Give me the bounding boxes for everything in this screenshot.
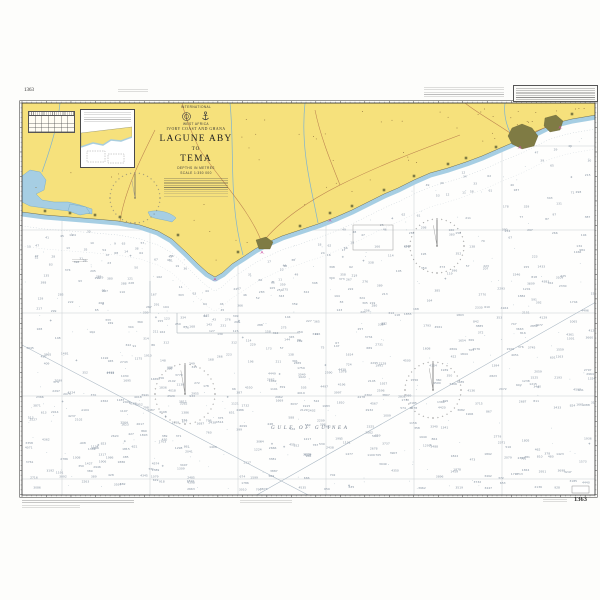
- svg-text:46: 46: [220, 302, 224, 306]
- town-symbol: [44, 210, 47, 213]
- town-symbol: [413, 175, 416, 178]
- svg-text:67: 67: [154, 257, 158, 261]
- svg-text:288: 288: [257, 323, 263, 327]
- svg-text:123: 123: [233, 329, 239, 333]
- svg-text:2438: 2438: [208, 420, 216, 424]
- svg-text:3049: 3049: [298, 372, 306, 376]
- svg-text:276: 276: [225, 317, 231, 321]
- svg-text:371: 371: [176, 434, 182, 438]
- svg-text:64: 64: [203, 302, 207, 306]
- svg-text:2185: 2185: [409, 401, 417, 405]
- svg-text:842: 842: [473, 320, 479, 324]
- svg-text:127: 127: [209, 329, 215, 333]
- svg-text:223: 223: [483, 264, 489, 268]
- svg-text:702: 702: [330, 473, 336, 477]
- svg-text:731: 731: [148, 467, 154, 471]
- svg-text:651: 651: [229, 410, 235, 414]
- title-fineprint-1: [164, 178, 228, 190]
- svg-text:588: 588: [288, 416, 294, 420]
- town-symbol: [351, 205, 354, 208]
- svg-text:83: 83: [49, 263, 53, 267]
- svg-text:217: 217: [36, 307, 42, 311]
- svg-text:162: 162: [160, 330, 166, 334]
- svg-text:30: 30: [588, 158, 592, 162]
- svg-text:1661: 1661: [576, 402, 584, 406]
- svg-text:67: 67: [237, 287, 241, 291]
- svg-text:4019: 4019: [297, 391, 305, 395]
- svg-text:4304: 4304: [429, 363, 437, 367]
- svg-text:2102: 2102: [75, 418, 83, 422]
- svg-text:1065: 1065: [570, 320, 578, 324]
- projection-note: [240, 500, 292, 503]
- svg-text:861: 861: [184, 444, 190, 448]
- svg-text:4094: 4094: [304, 452, 312, 456]
- svg-text:164: 164: [89, 330, 95, 334]
- svg-text:119: 119: [98, 275, 104, 279]
- svg-text:314: 314: [143, 336, 149, 340]
- svg-text:1878: 1878: [453, 468, 461, 472]
- svg-text:3807: 3807: [382, 393, 390, 397]
- svg-text:389: 389: [87, 469, 93, 473]
- svg-text:399: 399: [236, 428, 242, 432]
- svg-text:1882: 1882: [518, 294, 526, 298]
- svg-text:2079: 2079: [504, 455, 512, 459]
- svg-text:1427: 1427: [85, 462, 93, 466]
- svg-text:370: 370: [404, 245, 410, 249]
- svg-text:70: 70: [481, 239, 485, 243]
- svg-text:195: 195: [421, 252, 427, 256]
- svg-text:283: 283: [259, 290, 265, 294]
- svg-text:275: 275: [281, 326, 287, 330]
- svg-text:87: 87: [183, 325, 187, 329]
- svg-text:4561: 4561: [435, 325, 443, 329]
- town-symbol: [465, 157, 468, 160]
- svg-text:1983: 1983: [322, 404, 330, 408]
- svg-text:250: 250: [277, 288, 283, 292]
- svg-text:223: 223: [226, 353, 232, 357]
- svg-text:56: 56: [259, 278, 263, 282]
- source-inset-map: [81, 125, 132, 167]
- chart-title-line2: TO: [157, 147, 235, 152]
- svg-text:2485: 2485: [187, 475, 195, 479]
- svg-text:4496: 4496: [581, 308, 589, 312]
- svg-text:1191: 1191: [343, 441, 351, 445]
- svg-text:1481: 1481: [61, 351, 69, 355]
- svg-text:135: 135: [44, 274, 50, 278]
- svg-text:187: 187: [514, 188, 520, 192]
- svg-text:386: 386: [167, 366, 173, 370]
- svg-text:1936: 1936: [584, 437, 592, 441]
- svg-text:2438: 2438: [326, 446, 334, 450]
- svg-text:65: 65: [550, 164, 554, 168]
- svg-text:724: 724: [346, 362, 352, 366]
- depths-label: DEPTHS IN METRES: [157, 167, 235, 170]
- svg-text:303: 303: [178, 293, 184, 297]
- svg-text:1192: 1192: [101, 356, 109, 360]
- svg-text:4514: 4514: [216, 420, 224, 424]
- svg-text:3871: 3871: [33, 404, 41, 408]
- svg-text:864: 864: [432, 437, 438, 441]
- svg-text:46: 46: [243, 293, 247, 297]
- svg-text:42: 42: [169, 255, 173, 259]
- cautions-note: [424, 87, 504, 97]
- svg-text:372: 372: [498, 476, 504, 480]
- svg-text:3645: 3645: [26, 346, 34, 350]
- svg-text:1500: 1500: [507, 347, 515, 351]
- svg-text:46: 46: [383, 228, 387, 232]
- svg-text:4497: 4497: [320, 384, 328, 388]
- svg-text:87: 87: [545, 217, 549, 221]
- svg-text:65: 65: [271, 281, 275, 285]
- svg-text:349: 349: [312, 332, 318, 336]
- svg-text:602: 602: [516, 383, 522, 387]
- print-note: [22, 505, 80, 508]
- svg-text:38: 38: [291, 258, 295, 262]
- svg-text:3737: 3737: [382, 441, 390, 445]
- svg-text:3761: 3761: [26, 460, 34, 464]
- svg-text:2529: 2529: [167, 394, 175, 398]
- town-symbol: [447, 163, 450, 166]
- nautical-chart-canvas: 3734234381235911924023645374193691815207…: [0, 0, 600, 600]
- svg-text:352: 352: [456, 252, 462, 256]
- svg-text:350: 350: [421, 266, 427, 270]
- svg-text:298: 298: [576, 190, 582, 194]
- warning-note-text: [516, 88, 595, 100]
- svg-text:77: 77: [519, 215, 523, 219]
- svg-text:234: 234: [505, 229, 511, 233]
- svg-text:760: 760: [206, 431, 212, 435]
- svg-text:223: 223: [532, 255, 538, 259]
- svg-text:129: 129: [38, 296, 44, 300]
- svg-text:44: 44: [283, 264, 287, 268]
- svg-text:360: 360: [137, 320, 143, 324]
- svg-text:86: 86: [151, 343, 155, 347]
- svg-text:1786: 1786: [241, 481, 249, 485]
- svg-text:2325: 2325: [367, 425, 375, 429]
- svg-text:4449: 4449: [268, 371, 276, 375]
- svg-text:4198: 4198: [159, 410, 167, 414]
- svg-text:1886: 1886: [118, 460, 126, 464]
- svg-text:1906: 1906: [99, 460, 107, 464]
- svg-text:3745: 3745: [528, 346, 536, 350]
- svg-text:3896: 3896: [436, 474, 444, 478]
- svg-text:272: 272: [194, 381, 200, 385]
- svg-text:2823: 2823: [489, 374, 497, 378]
- svg-text:392: 392: [536, 300, 542, 304]
- svg-text:1687: 1687: [197, 422, 205, 426]
- svg-text:1906: 1906: [466, 412, 474, 416]
- svg-text:164: 164: [427, 299, 433, 303]
- svg-text:1107: 1107: [120, 409, 128, 413]
- svg-text:613: 613: [41, 411, 47, 415]
- svg-text:4500: 4500: [403, 358, 411, 362]
- svg-text:194: 194: [581, 233, 587, 237]
- town-symbol: [94, 214, 97, 217]
- svg-text:148: 148: [160, 359, 166, 363]
- svg-text:16: 16: [327, 253, 331, 257]
- svg-text:2102: 2102: [168, 379, 176, 383]
- svg-text:619: 619: [153, 478, 159, 482]
- svg-text:162: 162: [156, 275, 162, 279]
- svg-text:3941: 3941: [141, 393, 149, 397]
- svg-text:10: 10: [90, 241, 94, 245]
- svg-text:2366: 2366: [36, 395, 44, 399]
- svg-text:219: 219: [370, 301, 376, 305]
- series-label: INTERNATIONAL: [157, 106, 235, 109]
- svg-text:28: 28: [51, 255, 55, 259]
- svg-text:1556: 1556: [411, 378, 419, 382]
- svg-text:2263: 2263: [82, 479, 90, 483]
- svg-text:213: 213: [382, 292, 388, 296]
- svg-text:11: 11: [179, 285, 183, 289]
- svg-text:3447: 3447: [484, 486, 492, 490]
- svg-text:93: 93: [78, 279, 82, 283]
- svg-text:1793: 1793: [423, 324, 431, 328]
- svg-text:281: 281: [409, 231, 415, 235]
- svg-text:2620: 2620: [111, 434, 119, 438]
- svg-text:305: 305: [362, 301, 368, 305]
- svg-text:66: 66: [232, 387, 236, 391]
- svg-text:4324: 4324: [68, 390, 76, 394]
- svg-text:194: 194: [334, 294, 340, 298]
- svg-text:4350: 4350: [391, 469, 399, 473]
- svg-text:143: 143: [206, 322, 212, 326]
- svg-text:1224: 1224: [254, 448, 262, 452]
- svg-text:455: 455: [289, 443, 295, 447]
- svg-text:2932: 2932: [366, 408, 374, 412]
- svg-text:1822: 1822: [451, 454, 459, 458]
- svg-text:653: 653: [500, 481, 506, 485]
- svg-text:1156: 1156: [409, 421, 417, 425]
- svg-text:3433: 3433: [554, 406, 562, 410]
- svg-text:2731: 2731: [375, 342, 383, 346]
- svg-text:1669: 1669: [276, 399, 284, 403]
- svg-text:47: 47: [361, 233, 365, 237]
- svg-text:10: 10: [27, 244, 31, 248]
- svg-text:4018: 4018: [134, 395, 142, 399]
- town-symbol: [237, 251, 240, 254]
- svg-text:30: 30: [87, 230, 91, 234]
- svg-text:132: 132: [204, 313, 210, 317]
- town-symbol: [571, 113, 574, 116]
- svg-text:2743: 2743: [120, 360, 128, 364]
- svg-text:2293: 2293: [497, 286, 505, 290]
- corner-note-box: [572, 486, 589, 493]
- svg-text:3887: 3887: [270, 469, 278, 473]
- svg-text:427: 427: [128, 432, 134, 436]
- svg-text:396: 396: [452, 269, 458, 273]
- svg-text:138: 138: [469, 245, 475, 249]
- svg-text:4486: 4486: [236, 408, 244, 412]
- svg-text:62: 62: [328, 244, 332, 248]
- svg-text:1394: 1394: [492, 364, 500, 368]
- svg-text:522: 522: [314, 399, 320, 403]
- svg-text:1695: 1695: [123, 378, 131, 382]
- source-inset-legend: [84, 112, 131, 122]
- svg-text:621: 621: [132, 445, 138, 449]
- svg-text:63: 63: [122, 241, 126, 245]
- svg-text:3037: 3037: [290, 402, 298, 406]
- svg-text:64: 64: [139, 251, 143, 255]
- svg-text:173: 173: [266, 347, 272, 351]
- svg-text:1201: 1201: [523, 287, 531, 291]
- svg-text:762: 762: [548, 281, 554, 285]
- svg-text:430: 430: [162, 437, 168, 441]
- svg-text:1910: 1910: [144, 353, 152, 357]
- svg-text:2786: 2786: [60, 457, 68, 461]
- svg-text:51: 51: [169, 259, 173, 263]
- svg-text:3519: 3519: [455, 485, 463, 489]
- svg-text:168: 168: [37, 327, 43, 331]
- svg-text:2596: 2596: [377, 389, 385, 393]
- svg-text:2129: 2129: [300, 408, 308, 412]
- svg-text:169: 169: [297, 339, 303, 343]
- svg-text:130: 130: [217, 332, 223, 336]
- svg-text:178: 178: [503, 205, 509, 209]
- svg-text:772: 772: [181, 418, 187, 422]
- svg-text:3440: 3440: [533, 384, 541, 388]
- svg-text:4051: 4051: [511, 353, 519, 357]
- svg-text:1008: 1008: [73, 456, 81, 460]
- svg-text:17: 17: [267, 260, 271, 264]
- svg-text:47: 47: [35, 244, 39, 248]
- svg-text:816: 816: [520, 331, 526, 335]
- corrections-note: [543, 499, 567, 502]
- svg-text:359: 359: [280, 385, 286, 389]
- svg-text:147: 147: [334, 344, 340, 348]
- svg-text:1927: 1927: [380, 382, 388, 386]
- chart-number-top-left: 1363: [24, 88, 34, 93]
- svg-text:229: 229: [250, 342, 256, 346]
- svg-text:65: 65: [95, 308, 99, 312]
- svg-text:45: 45: [60, 234, 64, 238]
- svg-text:389: 389: [91, 474, 97, 478]
- svg-text:105: 105: [396, 269, 402, 273]
- svg-text:1759: 1759: [297, 366, 305, 370]
- svg-text:1915: 1915: [303, 404, 311, 408]
- svg-text:823: 823: [101, 442, 107, 446]
- svg-text:3732: 3732: [474, 480, 482, 484]
- svg-text:105: 105: [270, 286, 276, 290]
- svg-text:387: 387: [236, 391, 242, 395]
- svg-text:297: 297: [527, 228, 533, 232]
- svg-text:705: 705: [468, 348, 474, 352]
- town-symbol: [177, 234, 180, 237]
- town-symbol: [299, 225, 302, 228]
- svg-text:2193: 2193: [554, 376, 562, 380]
- svg-text:389: 389: [162, 434, 168, 438]
- town-symbol: [329, 212, 332, 215]
- svg-text:33: 33: [473, 181, 477, 185]
- svg-text:1324: 1324: [588, 376, 596, 380]
- title-fineprint-2: [164, 191, 228, 197]
- svg-text:1844: 1844: [460, 352, 468, 356]
- svg-text:389: 389: [377, 283, 383, 287]
- svg-text:25: 25: [380, 223, 384, 227]
- svg-text:1958: 1958: [172, 420, 180, 424]
- sea-name-label: GULF OF GUINEA: [271, 425, 349, 431]
- svg-text:2590: 2590: [325, 371, 333, 375]
- svg-text:338: 338: [368, 260, 374, 264]
- svg-text:54: 54: [102, 248, 106, 252]
- svg-text:322: 322: [304, 290, 310, 294]
- svg-text:3358: 3358: [25, 441, 33, 445]
- svg-text:1163: 1163: [556, 354, 564, 358]
- town-symbol: [69, 212, 72, 215]
- svg-text:131: 131: [556, 202, 562, 206]
- warning-note-box: [513, 85, 598, 102]
- svg-text:14: 14: [124, 249, 128, 253]
- svg-text:298: 298: [421, 226, 427, 230]
- svg-text:1291: 1291: [423, 444, 431, 448]
- svg-text:31: 31: [248, 273, 252, 277]
- svg-text:767: 767: [313, 443, 319, 447]
- svg-text:2151: 2151: [522, 310, 530, 314]
- town-symbol: [119, 216, 122, 219]
- svg-text:4136: 4136: [467, 389, 475, 393]
- svg-text:569: 569: [269, 474, 275, 478]
- svg-text:3262: 3262: [180, 401, 188, 405]
- svg-text:3873: 3873: [260, 487, 268, 491]
- svg-text:1175: 1175: [135, 357, 143, 361]
- svg-text:50: 50: [134, 266, 138, 270]
- svg-text:23: 23: [107, 261, 111, 265]
- svg-text:3084: 3084: [256, 440, 264, 444]
- svg-text:1433: 1433: [538, 265, 546, 269]
- svg-text:250: 250: [175, 322, 181, 326]
- svg-text:462: 462: [535, 448, 541, 452]
- svg-text:2955: 2955: [191, 391, 199, 395]
- svg-text:38: 38: [135, 246, 139, 250]
- svg-text:398: 398: [329, 265, 335, 269]
- svg-text:35: 35: [84, 247, 88, 251]
- svg-text:267: 267: [346, 277, 352, 281]
- svg-text:194: 194: [163, 305, 169, 309]
- svg-text:267: 267: [146, 305, 152, 309]
- svg-text:314: 314: [388, 311, 394, 315]
- svg-text:4361: 4361: [566, 332, 574, 336]
- svg-text:2402: 2402: [308, 409, 316, 413]
- svg-text:811: 811: [533, 399, 539, 403]
- svg-text:601: 601: [550, 356, 556, 360]
- svg-text:231: 231: [220, 323, 226, 327]
- svg-text:52: 52: [280, 268, 284, 272]
- svg-text:67: 67: [508, 236, 512, 240]
- svg-text:513: 513: [28, 416, 34, 420]
- svg-text:143: 143: [337, 308, 343, 312]
- svg-text:4164: 4164: [501, 306, 509, 310]
- svg-text:49: 49: [295, 272, 299, 276]
- svg-text:312: 312: [163, 340, 169, 344]
- svg-text:68: 68: [114, 251, 118, 255]
- svg-text:3997: 3997: [334, 391, 342, 395]
- svg-text:388: 388: [121, 281, 127, 285]
- svg-text:333: 333: [105, 318, 111, 322]
- svg-text:1130: 1130: [177, 383, 185, 387]
- town-symbol: [383, 189, 386, 192]
- svg-text:373: 373: [439, 265, 445, 269]
- svg-text:4574: 4574: [152, 462, 160, 466]
- svg-text:2964: 2964: [586, 372, 594, 376]
- svg-text:2951: 2951: [539, 469, 547, 473]
- svg-text:381: 381: [524, 455, 530, 459]
- svg-text:818: 818: [531, 275, 537, 279]
- svg-text:372: 372: [478, 331, 484, 335]
- svg-text:3734: 3734: [365, 335, 373, 339]
- svg-text:1298: 1298: [175, 446, 183, 450]
- svg-text:376: 376: [518, 345, 524, 349]
- svg-text:178: 178: [203, 384, 209, 388]
